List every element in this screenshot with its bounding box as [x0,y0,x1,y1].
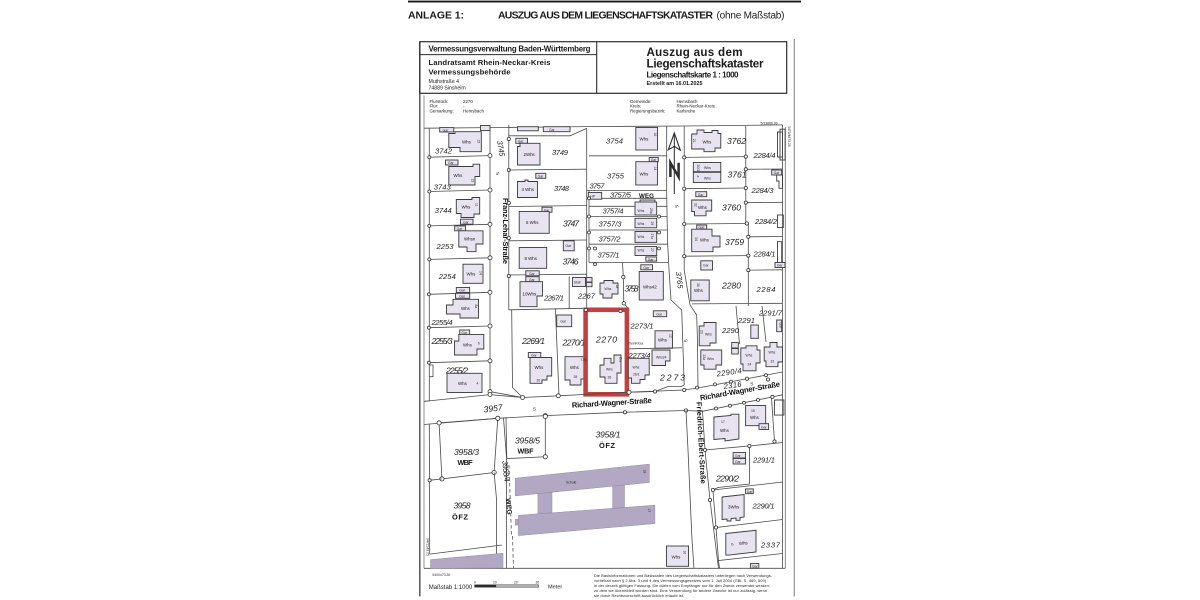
svg-text:3472/4873.25: 3472/4873.25 [787,126,791,147]
svg-text:3958/1: 3958/1 [596,430,621,440]
svg-text:3757/4: 3757/4 [603,207,624,216]
svg-text:3757/5: 3757/5 [610,191,632,200]
svg-text:2337: 2337 [760,541,781,550]
svg-text:Whs: Whs [638,209,645,213]
svg-text:2290/1: 2290/1 [752,502,775,511]
svg-text:ÖFZ: ÖFZ [452,513,468,522]
svg-text:36: 36 [696,283,700,287]
svg-text:2284/3: 2284/3 [751,186,775,195]
svg-text:a: a [696,176,700,178]
svg-text:3759: 3759 [725,237,744,247]
svg-text:Whs: Whs [462,139,472,144]
svg-text:2291/1: 2291/1 [752,456,775,465]
svg-text:Meter: Meter [548,585,562,591]
svg-text:Whs: Whs [462,204,472,209]
svg-text:KleinKiGa: KleinKiGa [628,342,643,346]
svg-text:WEG: WEG [639,193,654,200]
svg-text:3762: 3762 [727,136,746,146]
svg-text:Whs: Whs [704,166,711,170]
svg-text:3748: 3748 [554,184,570,193]
svg-text:Whs: Whs [640,137,650,142]
svg-text:sie durch Rechtsvorschrift aus: sie durch Rechtsvorschrift ausdrücklich … [594,593,684,598]
svg-text:16: 16 [653,133,657,137]
svg-text:Whs: Whs [703,140,713,145]
svg-text:17: 17 [721,420,725,424]
svg-text:1a: 1a [615,285,619,289]
svg-text:Whs24: Whs24 [656,356,667,360]
svg-text:Whs: Whs [705,333,712,337]
svg-text:Gar: Gar [443,128,450,132]
svg-text:4: 4 [477,381,479,385]
svg-text:3958: 3958 [454,500,471,510]
svg-text:Whs: Whs [694,288,704,293]
svg-text:Gar: Gar [656,313,663,317]
svg-text:10Whs: 10Whs [523,291,537,296]
svg-text:Liegenschaftskataster: Liegenschaftskataster [647,57,764,70]
svg-text:Karlsruhe: Karlsruhe [677,109,696,114]
svg-text:Gar: Gar [761,425,768,429]
svg-text:2291/7: 2291/7 [758,308,783,317]
svg-text:Gar: Gar [538,175,545,179]
svg-text:Gar: Gar [529,272,536,276]
svg-text:Whs: Whs [638,222,645,226]
svg-text:Whs: Whs [672,555,682,560]
svg-text:Whs: Whs [605,287,612,291]
svg-text:2290: 2290 [721,326,740,335]
svg-text:2Whs: 2Whs [524,152,536,157]
svg-text:Gar: Gar [643,266,650,270]
svg-text:2255/4: 2255/4 [431,318,453,327]
svg-text:Whs: Whs [535,365,545,370]
svg-text:23: 23 [700,330,704,334]
svg-text:18: 18 [643,470,647,474]
svg-text:Whs: Whs [638,235,645,239]
svg-text:3757/1: 3757/1 [598,251,620,260]
svg-text:2284/1: 2284/1 [753,250,776,259]
svg-text:2270: 2270 [595,335,617,345]
svg-text:24: 24 [748,363,752,367]
svg-text:Whs: Whs [739,540,749,546]
svg-text:Läg: Läg [581,358,587,362]
svg-text:3761: 3761 [728,169,747,179]
svg-text:2267/1: 2267/1 [543,294,564,303]
svg-text:14: 14 [653,167,657,171]
svg-text:16: 16 [683,551,687,555]
svg-text:15: 15 [751,409,755,413]
svg-text:Gar: Gar [566,244,573,248]
svg-text:Whs: Whs [458,381,468,386]
svg-text:3758: 3758 [625,284,639,294]
svg-text:HP: HP [590,195,595,199]
svg-text:11: 11 [475,203,479,207]
svg-text:3746: 3746 [563,256,579,266]
svg-text:Hemsbach: Hemsbach [463,109,485,114]
svg-text:Liegenschaftskarte 1 : 1000: Liegenschaftskarte 1 : 1000 [647,71,740,80]
svg-text:21: 21 [692,139,696,143]
svg-text:17: 17 [647,509,651,513]
svg-text:Gar: Gar [448,161,455,165]
svg-text:Stall: Stall [574,281,581,285]
svg-text:Gar: Gar [735,454,742,458]
svg-text:3749: 3749 [552,148,569,157]
svg-text:8 Whs: 8 Whs [525,256,538,261]
svg-text:22: 22 [771,360,775,364]
svg-text:3757: 3757 [590,182,606,191]
svg-text:Vermessungsverwaltung Baden-Wü: Vermessungsverwaltung Baden-Württemberg [429,45,591,54]
svg-text:Whs: Whs [658,338,668,343]
svg-text:26/1: 26/1 [633,373,640,377]
svg-text:30: 30 [536,581,540,585]
svg-text:Whsn: Whsn [464,237,476,242]
svg-text:Maßstab 1:1000: Maßstab 1:1000 [429,585,473,591]
svg-text:3760: 3760 [722,203,741,213]
svg-text:Gar: Gar [778,323,782,330]
svg-text:10: 10 [493,581,497,585]
svg-text:WBF: WBF [518,447,535,456]
svg-text:3958/5: 3958/5 [515,436,540,446]
svg-text:ANLAGE 1:: ANLAGE 1: [408,11,464,22]
svg-text:Whs42: Whs42 [643,285,657,290]
svg-text:2284/2: 2284/2 [754,217,778,226]
svg-text:Whs: Whs [454,173,464,178]
svg-text:Gar: Gar [735,460,742,464]
svg-text:6 Whs: 6 Whs [526,220,539,225]
svg-text:ÖFZ: ÖFZ [599,441,615,450]
svg-text:2253: 2253 [436,242,455,251]
svg-text:Gemarkung:: Gemarkung: [430,109,454,114]
svg-text:AUSZUG AUS DEM LIEGENSCHAFTSKA: AUSZUG AUS DEM LIEGENSCHAFTSKATASTER [498,11,713,22]
svg-text:Gar: Gar [549,128,556,132]
svg-text:3Whs: 3Whs [728,505,740,510]
svg-text:Landratsamt Rhein-Neckar-Kreis: Landratsamt Rhein-Neckar-Kreis [429,58,551,67]
svg-text:Whs: Whs [746,353,753,357]
svg-text:2267: 2267 [577,292,596,301]
svg-text:28: 28 [574,375,578,379]
svg-text:2270: 2270 [463,99,473,104]
svg-text:13: 13 [471,179,475,183]
svg-text:S: S [533,407,536,412]
svg-text:3747: 3747 [563,219,580,229]
svg-text:Erstellt am 16.01.2025: Erstellt am 16.01.2025 [647,81,703,87]
svg-text:3744: 3744 [435,206,452,215]
svg-text:Whs: Whs [461,306,471,311]
svg-text:27a: 27a [650,234,654,240]
svg-text:Muthstraße 4: Muthstraße 4 [429,79,460,85]
svg-text:2284: 2284 [756,285,776,294]
svg-text:4 Whs: 4 Whs [522,187,535,192]
svg-text:2284/4: 2284/4 [753,151,776,160]
svg-text:0: 0 [474,581,476,585]
svg-text:Whs: Whs [638,249,645,253]
svg-text:29: 29 [650,222,654,226]
svg-text:2269/1: 2269/1 [521,336,545,346]
svg-text:2270/1: 2270/1 [562,337,586,347]
svg-text:Whs: Whs [633,366,640,370]
svg-text:29a: 29a [649,208,653,214]
svg-text:Whs: Whs [467,272,477,277]
svg-text:3755: 3755 [607,172,625,181]
svg-text:Gar: Gar [752,564,759,568]
svg-text:Whs: Whs [606,368,613,372]
svg-text:Whs: Whs [769,351,776,355]
svg-text:3742: 3742 [435,147,453,156]
svg-text:2280: 2280 [721,281,741,291]
svg-text:Whs: Whs [640,172,650,177]
svg-text:12: 12 [669,334,673,338]
svg-text:2254: 2254 [438,272,456,281]
svg-text:Vermessungsbehörde: Vermessungsbehörde [429,67,512,76]
svg-text:(ohne Maßstab): (ohne Maßstab) [717,11,785,22]
svg-text:Whs: Whs [570,365,580,370]
svg-text:20: 20 [514,581,518,585]
svg-text:6: 6 [478,342,480,346]
svg-text:15: 15 [477,140,481,144]
svg-text:Whs: Whs [698,205,708,210]
svg-text:Gar: Gar [560,320,567,324]
svg-text:Gar: Gar [459,295,466,299]
svg-text:Regierungsbezirk:: Regierungsbezirk: [630,109,665,114]
svg-text:Whs: Whs [750,415,760,420]
svg-text:Gar: Gar [698,193,705,197]
svg-text:2255/3: 2255/3 [431,336,453,346]
svg-text:Gar: Gar [618,357,622,364]
svg-text:Schule: Schule [566,480,576,484]
svg-text:Franz-Lehar-Straße: Franz-Lehar-Straße [501,198,510,264]
svg-text:3757/3: 3757/3 [599,220,623,229]
svg-text:Whs: Whs [463,343,473,348]
svg-text:Gar: Gar [648,258,655,262]
svg-text:Gar: Gar [463,220,470,224]
svg-text:Whs: Whs [700,238,710,243]
svg-text:2273/1: 2273/1 [630,322,654,331]
svg-text:14: 14 [478,271,482,275]
svg-text:20: 20 [537,379,541,383]
svg-text:2291: 2291 [737,316,755,325]
svg-text:74889 Sinsheim: 74889 Sinsheim [429,86,466,92]
svg-text:Gar: Gar [777,264,784,268]
svg-text:23a: 23a [702,355,706,361]
svg-text:Whs: Whs [720,428,730,433]
svg-text:3472143.25: 3472143.25 [426,538,430,556]
svg-text:3754: 3754 [606,137,623,146]
svg-text:2290/2: 2290/2 [715,474,739,484]
svg-text:3757/2: 3757/2 [599,235,622,244]
svg-text:Gar: Gar [459,289,466,293]
svg-text:26: 26 [608,376,612,380]
svg-text:5400473.30: 5400473.30 [432,573,450,577]
svg-text:32: 32 [694,203,698,207]
svg-text:WBF: WBF [458,458,474,467]
svg-text:Gar: Gar [703,264,710,268]
svg-text:27: 27 [650,248,654,252]
svg-text:Whs: Whs [707,357,714,361]
svg-text:8a: 8a [474,305,478,309]
svg-text:Gar: Gar [747,490,754,494]
svg-text:30/30: 30/30 [696,165,700,174]
svg-text:3958/3: 3958/3 [454,447,479,457]
svg-text:34: 34 [694,237,698,241]
svg-text:Whs: Whs [704,176,711,180]
